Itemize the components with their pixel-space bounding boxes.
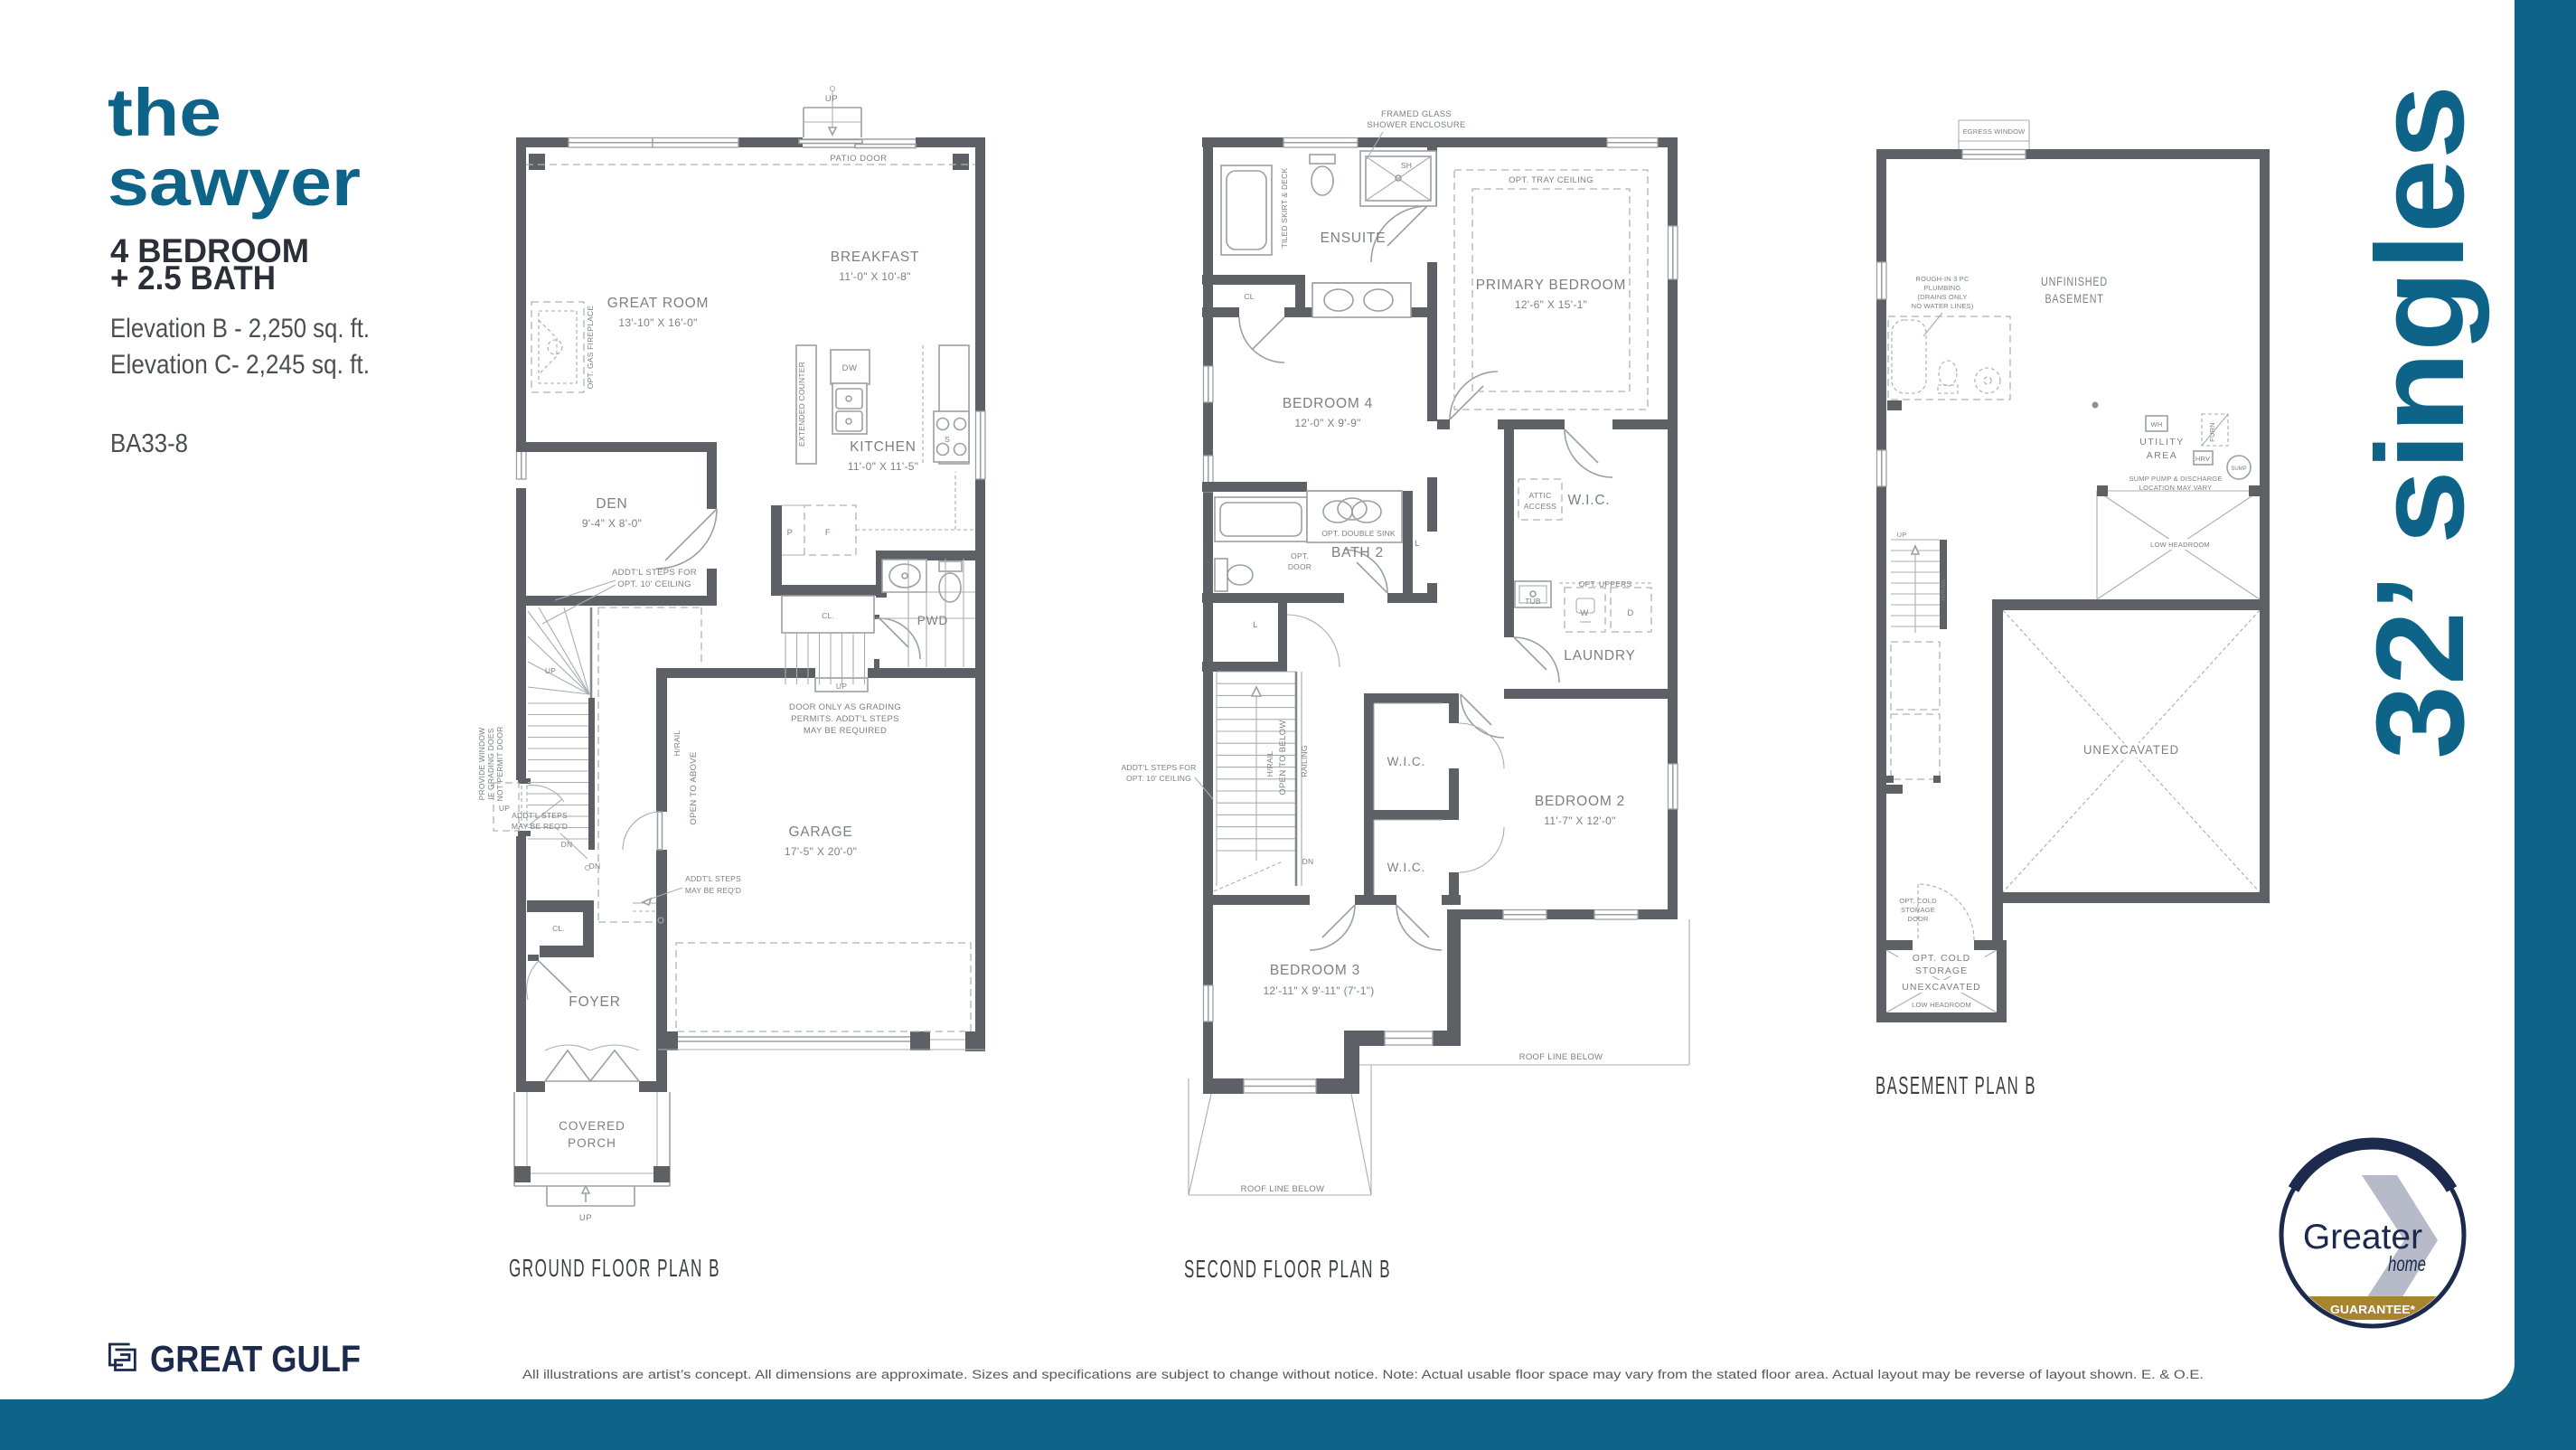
svg-text:11'-7" X 12'-0": 11'-7" X 12'-0" xyxy=(1544,814,1615,827)
svg-text:EXTENDED COUNTER: EXTENDED COUNTER xyxy=(797,362,806,447)
svg-text:STORAGE: STORAGE xyxy=(1915,965,1968,976)
svg-text:P: P xyxy=(787,528,794,538)
svg-text:D: D xyxy=(1627,608,1633,618)
svg-text:NO WATER LINES): NO WATER LINES) xyxy=(1912,302,1974,310)
svg-text:12'-6" X 15'-1": 12'-6" X 15'-1" xyxy=(1515,298,1587,311)
svg-text:PWD: PWD xyxy=(917,614,949,627)
svg-text:GUARANTEE*: GUARANTEE* xyxy=(2330,1303,2416,1316)
svg-text:PERMITS. ADDT'L STEPS: PERMITS. ADDT'L STEPS xyxy=(791,714,899,724)
svg-text:BASEMENT: BASEMENT xyxy=(2045,292,2104,306)
svg-text:FRAMED GLASS: FRAMED GLASS xyxy=(1381,109,1452,119)
svg-text:KITCHEN: KITCHEN xyxy=(850,439,917,455)
svg-text:SUMP PUMP & DISCHARGE: SUMP PUMP & DISCHARGE xyxy=(2129,475,2222,483)
svg-text:DN: DN xyxy=(561,840,573,849)
svg-text:H/RAIL: H/RAIL xyxy=(672,730,682,757)
svg-text:GROUND FLOOR PLAN B: GROUND FLOOR PLAN B xyxy=(509,1254,720,1282)
svg-text:UNFINISHED: UNFINISHED xyxy=(2041,275,2108,288)
svg-text:W.I.C.: W.I.C. xyxy=(1568,493,1611,508)
svg-text:UP: UP xyxy=(1897,531,1907,539)
svg-text:MAY BE REQUIRED: MAY BE REQUIRED xyxy=(804,726,887,736)
svg-text:ADDT'L STEPS FOR: ADDT'L STEPS FOR xyxy=(1122,763,1197,772)
svg-text:BEDROOM 3: BEDROOM 3 xyxy=(1270,963,1360,978)
svg-text:OPT. COLD: OPT. COLD xyxy=(1913,953,1970,964)
svg-text:17'-5" X 20'-0": 17'-5" X 20'-0" xyxy=(785,845,857,858)
svg-text:MAY BE REQ'D: MAY BE REQ'D xyxy=(685,886,741,895)
svg-text:LOW HEADROOM: LOW HEADROOM xyxy=(2150,541,2210,549)
svg-text:12'-11" X 9'-11" (7'-1"): 12'-11" X 9'-11" (7'-1") xyxy=(1263,984,1374,997)
svg-text:SH: SH xyxy=(1401,161,1412,170)
svg-text:home: home xyxy=(2388,1252,2426,1276)
svg-text:OPT. TRAY CEILING: OPT. TRAY CEILING xyxy=(1509,175,1594,185)
svg-text:UNEXCAVATED: UNEXCAVATED xyxy=(2083,743,2179,757)
svg-text:DN: DN xyxy=(1302,857,1314,866)
svg-text:DOOR ONLY AS GRADING: DOOR ONLY AS GRADING xyxy=(789,702,901,712)
svg-text:W.I.C.: W.I.C. xyxy=(1387,755,1426,768)
svg-text:the: the xyxy=(108,75,221,150)
svg-text:ACCESS: ACCESS xyxy=(1524,502,1556,511)
svg-text:OPT. COLD: OPT. COLD xyxy=(1899,897,1937,905)
svg-text:BEDROOM 4: BEDROOM 4 xyxy=(1283,396,1373,411)
svg-text:SECOND FLOOR PLAN B: SECOND FLOOR PLAN B xyxy=(1184,1255,1391,1283)
svg-text:DOOR: DOOR xyxy=(1907,915,1929,923)
svg-text:12'-0" X 9'-9": 12'-0" X 9'-9" xyxy=(1294,417,1360,429)
svg-text:OPT. DOUBLE SINK: OPT. DOUBLE SINK xyxy=(1321,529,1396,538)
svg-text:L: L xyxy=(1253,620,1258,630)
svg-text:+ 2.5 BATH: + 2.5 BATH xyxy=(110,259,276,297)
svg-text:SHOWER ENCLOSURE: SHOWER ENCLOSURE xyxy=(1367,120,1465,130)
svg-text:MAY BE REQ'D: MAY BE REQ'D xyxy=(512,822,568,831)
svg-text:COVERED: COVERED xyxy=(559,1119,625,1133)
svg-text:BATH 2: BATH 2 xyxy=(1331,545,1384,560)
svg-text:LOCATION MAY VARY: LOCATION MAY VARY xyxy=(2139,484,2213,492)
svg-text:NOT PERMIT DOOR: NOT PERMIT DOOR xyxy=(495,727,504,802)
svg-text:BEDROOM 2: BEDROOM 2 xyxy=(1535,794,1625,809)
svg-text:W.I.C.: W.I.C. xyxy=(1387,861,1426,874)
svg-text:W: W xyxy=(1580,608,1588,618)
svg-text:AREA: AREA xyxy=(2147,450,2178,461)
svg-text:DW: DW xyxy=(842,363,858,373)
svg-text:DOOR: DOOR xyxy=(1288,562,1312,571)
svg-text:UP: UP xyxy=(836,682,847,691)
svg-text:RAILING: RAILING xyxy=(1300,745,1309,777)
svg-text:Elevation B - 2,250 sq. ft.: Elevation B - 2,250 sq. ft. xyxy=(110,314,370,344)
svg-text:GREAT ROOM: GREAT ROOM xyxy=(607,296,710,311)
svg-text:H/RAIL: H/RAIL xyxy=(1939,578,1947,600)
svg-text:PRIMARY BEDROOM: PRIMARY BEDROOM xyxy=(1476,278,1626,293)
svg-text:Greater: Greater xyxy=(2303,1218,2422,1257)
svg-text:CL.: CL. xyxy=(822,611,834,620)
svg-text:ADDT'L STEPS: ADDT'L STEPS xyxy=(512,811,568,820)
svg-text:BA33-8: BA33-8 xyxy=(110,429,188,458)
svg-text:UTILITY: UTILITY xyxy=(2139,437,2185,447)
svg-text:UP: UP xyxy=(579,1213,592,1223)
svg-text:GARAGE: GARAGE xyxy=(788,824,852,840)
svg-text:IF GRADING DOES: IF GRADING DOES xyxy=(486,728,495,799)
svg-text:S: S xyxy=(945,435,950,444)
svg-text:LAUNDRY: LAUNDRY xyxy=(1564,648,1635,664)
svg-text:(DRAINS ONLY: (DRAINS ONLY xyxy=(1917,293,1967,301)
svg-text:TUB: TUB xyxy=(1525,597,1541,606)
svg-text:TILED SKIRT & DECK: TILED SKIRT & DECK xyxy=(1280,167,1289,248)
svg-text:ROOF LINE BELOW: ROOF LINE BELOW xyxy=(1241,1184,1325,1194)
svg-text:OPT. 10' CEILING: OPT. 10' CEILING xyxy=(1126,774,1191,783)
svg-text:PLUMBING: PLUMBING xyxy=(1924,284,1961,292)
svg-text:Elevation C- 2,245 sq. ft.: Elevation C- 2,245 sq. ft. xyxy=(110,350,370,380)
svg-text:DN: DN xyxy=(589,862,601,871)
svg-text:UP: UP xyxy=(825,94,838,104)
svg-text:CL: CL xyxy=(1244,292,1254,301)
svg-text:EGRESS WINDOW: EGRESS WINDOW xyxy=(1963,127,2026,136)
svg-text:BREAKFAST: BREAKFAST xyxy=(831,250,920,265)
svg-text:ADDT'L STEPS FOR: ADDT'L STEPS FOR xyxy=(612,568,697,578)
svg-text:9'-4" X 8'-0": 9'-4" X 8'-0" xyxy=(582,517,642,530)
svg-text:SUMP: SUMP xyxy=(2231,466,2246,472)
svg-text:11'-0" X 10'-8": 11'-0" X 10'-8" xyxy=(839,270,910,283)
svg-text:FURN: FURN xyxy=(2208,422,2216,442)
svg-text:32’ singles: 32’ singles xyxy=(2351,85,2490,759)
svg-text:PATIO DOOR: PATIO DOOR xyxy=(830,154,887,164)
svg-text:L: L xyxy=(1415,539,1420,549)
svg-text:CL.: CL. xyxy=(552,924,565,933)
svg-text:OPEN TO BELOW: OPEN TO BELOW xyxy=(1278,720,1288,795)
svg-text:ROUGH-IN 3 PC: ROUGH-IN 3 PC xyxy=(1915,275,1970,283)
svg-text:HRV: HRV xyxy=(2195,455,2210,463)
svg-text:11'-0" X 11'-5": 11'-0" X 11'-5" xyxy=(848,460,919,473)
svg-text:ROOF LINE BELOW: ROOF LINE BELOW xyxy=(1519,1052,1603,1062)
svg-text:ENSUITE: ENSUITE xyxy=(1321,231,1387,246)
svg-text:GREAT GULF: GREAT GULF xyxy=(150,1338,361,1379)
svg-text:LOW HEADROOM: LOW HEADROOM xyxy=(1912,1001,1971,1009)
svg-text:F: F xyxy=(825,528,831,538)
svg-text:PROVIDE WINDOW: PROVIDE WINDOW xyxy=(477,728,486,801)
svg-text:UP: UP xyxy=(499,804,510,813)
svg-text:STORAGE: STORAGE xyxy=(1901,906,1935,914)
svg-text:FOYER: FOYER xyxy=(569,994,620,1010)
svg-text:PORCH: PORCH xyxy=(568,1136,616,1150)
svg-text:OPT.: OPT. xyxy=(1291,551,1309,560)
svg-text:UP: UP xyxy=(545,666,556,675)
svg-text:OPT. 10' CEILING: OPT. 10' CEILING xyxy=(617,579,691,589)
svg-text:H/RAIL: H/RAIL xyxy=(1265,751,1274,777)
svg-text:13'-10" X 16'-0": 13'-10" X 16'-0" xyxy=(618,316,697,329)
svg-text:WH: WH xyxy=(2151,420,2163,428)
svg-text:DEN: DEN xyxy=(596,496,627,512)
svg-text:OPT. GAS FIREPLACE: OPT. GAS FIREPLACE xyxy=(586,306,595,390)
svg-text:OPT. UPPERS: OPT. UPPERS xyxy=(1579,579,1632,588)
svg-text:UNEXCAVATED: UNEXCAVATED xyxy=(1902,982,1980,993)
svg-text:All illustrations are artist’s: All illustrations are artist’s concept. … xyxy=(522,1368,2204,1381)
svg-text:BASEMENT PLAN B: BASEMENT PLAN B xyxy=(1876,1071,2036,1099)
svg-text:ATTIC: ATTIC xyxy=(1529,491,1552,500)
svg-text:sawyer: sawyer xyxy=(108,145,361,220)
svg-text:OPEN TO ABOVE: OPEN TO ABOVE xyxy=(689,751,699,824)
svg-text:ADDT'L STEPS: ADDT'L STEPS xyxy=(685,874,741,883)
